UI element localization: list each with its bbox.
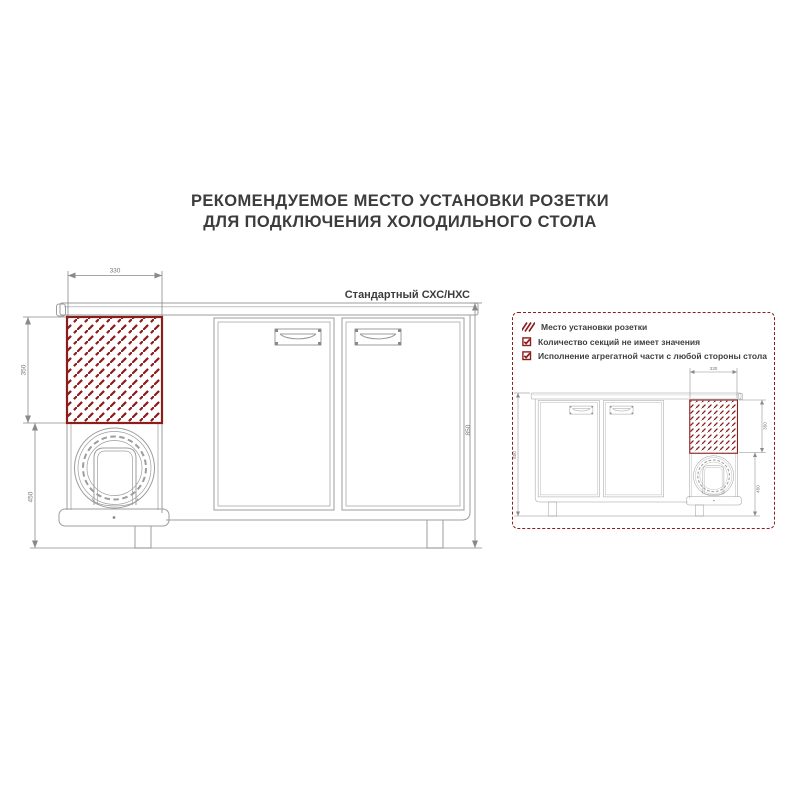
dim-socket-height: 350 [21,364,28,375]
dim-small-table-height: 850 [512,451,517,459]
socket-area-hatch-small [691,401,737,453]
technical-diagram: 330 350 450 850 Стандартный СХС/НХС 330 … [0,0,800,800]
model-label: Стандартный СХС/НХС [345,289,470,301]
dim-small-compressor-height: 450 [755,485,760,493]
page: РЕКОМЕНДУЕМОЕ МЕСТО УСТАНОВКИ РОЗЕТКИ ДЛ… [0,0,800,800]
dim-table-height: 850 [465,424,472,435]
dim-socket-width: 330 [110,268,121,275]
dim-small-socket-height: 350 [762,422,767,430]
socket-area-hatch [68,318,161,422]
dim-small-socket-width: 330 [710,366,718,371]
dim-compressor-height: 450 [28,491,35,502]
